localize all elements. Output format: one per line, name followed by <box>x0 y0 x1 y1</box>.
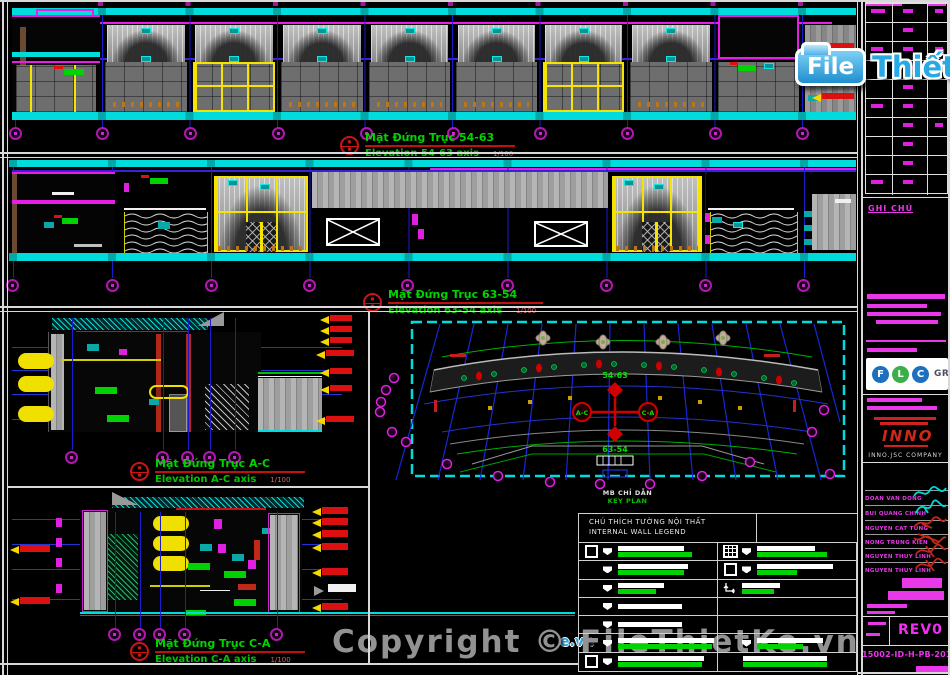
sign-box <box>317 28 327 34</box>
elevation-a-c-drawing: Mặt Đứng Trục A-C Elevation A-C axis 1/1… <box>0 311 368 486</box>
folder-icon: File <box>795 48 866 86</box>
internal-wall-legend: CHÚ THÍCH TƯỜNG NỘI THẤT INTERNAL WALL L… <box>578 513 858 672</box>
note-underline <box>866 340 946 342</box>
callout-stadium <box>18 353 54 369</box>
note-bar <box>867 294 945 299</box>
storefront-frame <box>193 62 275 112</box>
red-column <box>156 334 161 432</box>
section-line <box>862 394 949 395</box>
rev-entry <box>903 9 913 13</box>
note-bar <box>867 348 917 352</box>
sign-box <box>666 56 676 62</box>
annotation-green <box>224 571 246 578</box>
cyan-box <box>804 239 812 245</box>
roof-triangle <box>112 492 138 505</box>
red-column <box>254 540 260 560</box>
level-arrow-icon <box>312 508 321 516</box>
viewport-divider <box>0 306 858 308</box>
magenta-tag <box>56 558 62 567</box>
white-line <box>200 590 230 591</box>
title-vi: Mặt Đứng Trục C-A <box>155 638 305 650</box>
legend-row <box>579 598 857 616</box>
roof-triangle <box>198 312 224 326</box>
annotation-green <box>188 563 210 570</box>
curtain-bay <box>612 176 702 254</box>
level-flag <box>330 315 352 321</box>
title-vi: Mặt Đứng Trục A-C <box>155 458 305 470</box>
title-underline <box>388 302 543 304</box>
furniture-marks <box>377 102 442 107</box>
small-sign <box>52 192 74 195</box>
furniture-marks <box>464 102 529 107</box>
level-arrow-icon <box>312 519 321 527</box>
section-body <box>80 510 302 614</box>
wing-base <box>258 430 322 432</box>
rev-entry <box>903 142 913 146</box>
signature-red <box>912 556 948 574</box>
note-text-bar <box>876 320 938 324</box>
grid-bubble <box>96 127 109 140</box>
level-arrow-icon <box>812 94 821 102</box>
grid-caps <box>98 112 806 120</box>
magenta-box <box>214 519 222 529</box>
inno-logo: INNO <box>882 427 933 445</box>
title-vi: Mặt Đứng Trục 63-54 <box>388 289 543 301</box>
level-flag <box>822 93 854 99</box>
scale-bar <box>866 633 880 636</box>
title-en: Elevation A-C axis <box>155 474 256 485</box>
grid-bubble <box>709 127 722 140</box>
roof-hatch-band <box>112 497 304 508</box>
tag-icon <box>603 603 612 610</box>
legend-row <box>579 543 857 561</box>
sign-box <box>733 222 743 228</box>
tag-icon <box>742 566 751 573</box>
sign-box <box>228 180 238 186</box>
magenta-tag <box>124 183 129 192</box>
elevation-title-54-63: Mặt Đứng Trục 54-63 Elevation 54-63 axis… <box>340 132 515 159</box>
level-flag <box>330 385 352 391</box>
flc-letter-f: F <box>872 366 889 383</box>
grid-line <box>72 318 73 450</box>
small-sign <box>835 199 851 203</box>
grid-bubble <box>184 127 197 140</box>
grid-bubble <box>534 127 547 140</box>
grid-caps <box>9 253 809 261</box>
elevation-title-a-c: Mặt Đứng Trục A-C Elevation A-C axis 1/1… <box>130 458 305 485</box>
note-bar <box>867 398 922 402</box>
grid-bubble <box>9 127 22 140</box>
level-arrow-icon <box>10 546 19 554</box>
rev-box-line <box>889 616 890 645</box>
note-bar <box>867 304 927 308</box>
sign-box <box>229 56 239 62</box>
annotation-green <box>107 415 129 422</box>
sign-box <box>405 28 415 34</box>
grid-bubble <box>205 279 218 292</box>
level-flag <box>326 350 354 356</box>
cad-sheet: Mặt Đứng Trục 54-63 Elevation 54-63 axis… <box>0 0 950 675</box>
magenta-tag <box>56 518 62 527</box>
drawing-number: 15002-ID-H-PB-201.01 <box>862 650 949 659</box>
ground-line-green <box>80 615 575 616</box>
rev-col-line <box>892 3 893 195</box>
cladding-panels <box>312 172 608 208</box>
notes-label: GHI CHÚ <box>868 204 913 213</box>
facade-bay <box>369 15 450 120</box>
sign-box <box>764 63 774 69</box>
sign-box <box>260 184 270 190</box>
grid-line <box>115 512 116 628</box>
trim-line <box>12 61 100 63</box>
cyan-box <box>200 544 212 551</box>
callout-stadium <box>153 556 189 571</box>
sign-box <box>579 28 589 34</box>
wavy-wood-panel <box>124 212 208 253</box>
grid-line <box>188 318 189 450</box>
furniture-marks <box>616 246 698 251</box>
rev-entry <box>903 104 913 108</box>
inno-vn-name-bar <box>874 417 936 420</box>
striped-panel <box>84 512 106 610</box>
callout-stadium <box>153 516 189 531</box>
cyan-box <box>712 217 722 223</box>
level-flag <box>20 597 50 604</box>
level-arrow-icon <box>320 327 329 335</box>
cyan-box <box>158 222 170 229</box>
annotation-green <box>64 69 84 75</box>
legend-row <box>579 634 857 652</box>
level-arrow-icon <box>320 369 329 377</box>
legend-title-en: INTERNAL WALL LEGEND <box>589 527 756 537</box>
tag-icon <box>742 548 751 555</box>
level-arrow-icon <box>312 569 321 577</box>
sign-box <box>141 28 151 34</box>
section-line <box>862 197 949 198</box>
tag-icon <box>603 548 612 555</box>
grid-line <box>185 512 186 628</box>
level-flag <box>322 543 348 550</box>
annotation-red <box>54 215 62 218</box>
note-text-bar <box>867 312 941 316</box>
plan-grid-bubbles <box>376 374 835 489</box>
legend-row <box>579 561 857 579</box>
sign-box <box>317 56 327 62</box>
facade-bay <box>718 15 799 120</box>
scale-label: 1/100 <box>270 476 290 484</box>
ledge-line <box>708 208 794 210</box>
grid-bubble <box>108 628 121 641</box>
viewport-divider <box>0 157 858 158</box>
mirror-xbox <box>534 221 588 247</box>
grid-bubble <box>796 127 809 140</box>
grid-line <box>277 512 278 628</box>
legend-title-cell: CHÚ THÍCH TƯỜNG NỘI THẤT INTERNAL WALL L… <box>579 514 757 542</box>
elevation-63-54-drawing: Mặt Đứng Trục 63-54 Elevation 63-54 axis… <box>0 152 860 310</box>
field-bar <box>867 604 907 608</box>
sheet-border <box>2 0 4 675</box>
titleblock-border <box>857 0 858 675</box>
reception-desk <box>597 456 633 477</box>
yellow-line <box>150 585 210 587</box>
furniture-marks <box>638 102 704 107</box>
elevation-title-63-54: Mặt Đứng Trục 63-54 Elevation 63-54 axis… <box>363 289 543 316</box>
level-arrow-icon <box>320 338 329 346</box>
sign-box <box>492 28 502 34</box>
signer-row: NGUYEN THUY LINH <box>865 562 948 576</box>
key-plan-title-en: KEY PLAN <box>560 497 695 505</box>
wavy-wood-panel <box>710 212 798 253</box>
curtain-bay <box>214 176 308 254</box>
grid-line <box>160 512 161 628</box>
mirror-xbox <box>326 218 380 246</box>
callout-stadium <box>18 406 54 422</box>
rev-entry <box>871 180 883 184</box>
grid-line <box>235 318 236 450</box>
level-flag <box>326 416 354 422</box>
grid-caps <box>9 160 809 167</box>
note-bar <box>867 406 937 410</box>
key-plan-drawing: 54-63 63-54 A-C C-A <box>372 312 858 494</box>
tiny-text-marks <box>74 244 102 247</box>
annotation-green <box>62 218 78 224</box>
sign-box <box>229 28 239 34</box>
magenta-box <box>119 349 127 355</box>
grid-bubble <box>65 451 78 464</box>
grid-caps <box>98 8 806 15</box>
roof-hatch-band <box>52 318 208 330</box>
sign-box <box>624 180 634 186</box>
tag-icon <box>603 640 612 647</box>
cyan-box <box>149 399 159 405</box>
grid-bubble <box>621 127 634 140</box>
wall-square-icon <box>585 655 598 668</box>
flc-group-logo: F L C GROUP <box>866 358 948 390</box>
flc-letter-c: C <box>912 366 929 383</box>
x-lines <box>536 223 586 245</box>
grid-line <box>140 512 141 628</box>
legend-row <box>579 653 857 671</box>
key-plan-title-vi: MB CHỈ DẪN <box>560 489 695 497</box>
elevation-c-a-drawing: Mặt Đứng Trục C-A Elevation C-A axis 1/1… <box>0 487 368 663</box>
radial-grid-lines <box>396 324 840 480</box>
logo-text: Thiết Kế.vn <box>872 50 950 84</box>
wing-panel <box>258 378 322 430</box>
storefront-glass <box>16 65 96 112</box>
magenta-box <box>218 544 226 553</box>
sheet-border <box>7 0 8 675</box>
level-flag <box>330 337 352 343</box>
logo-thiet: Thiết <box>872 50 950 84</box>
section-mark-icon <box>363 293 382 312</box>
level-flag <box>322 603 348 610</box>
annotation-green <box>150 178 168 184</box>
inno-underline <box>884 445 928 447</box>
legend-header: CHÚ THÍCH TƯỜNG NỘI THẤT INTERNAL WALL L… <box>579 514 857 543</box>
furniture-marks <box>289 102 355 107</box>
level-flag <box>322 568 348 575</box>
level-flag <box>322 507 348 514</box>
cyan-box <box>804 225 812 231</box>
grid-bubble <box>106 279 119 292</box>
level-flag <box>20 545 50 552</box>
left-wall-block <box>12 15 100 112</box>
magenta-tag <box>56 538 62 547</box>
annotation-red <box>141 175 149 178</box>
titleblock-border <box>861 0 863 675</box>
feature-wall-b <box>706 174 798 254</box>
level-arrow-icon <box>320 386 329 394</box>
key-plan-label: MB CHỈ DẪN KEY PLAN <box>560 489 695 505</box>
grid-bubble <box>600 279 613 292</box>
yellow-line <box>61 359 161 361</box>
level-arrow-icon <box>320 316 329 324</box>
magenta-tag <box>705 235 710 244</box>
furniture-marks <box>113 102 179 107</box>
sign-box <box>654 184 664 190</box>
wall-square-icon <box>724 563 737 576</box>
viewport-divider <box>0 311 858 312</box>
canopy-band <box>12 52 100 57</box>
level-flag <box>322 518 348 525</box>
annotation-green <box>234 599 256 606</box>
tag-icon <box>603 621 612 628</box>
rev-entry <box>903 180 913 184</box>
annotation-green <box>95 387 117 394</box>
callout-stadium <box>149 385 189 399</box>
grid-bubble <box>797 279 810 292</box>
magenta-tag <box>418 229 424 239</box>
section-line <box>862 616 949 617</box>
title-underline <box>155 471 305 473</box>
facade-bay <box>105 15 187 120</box>
brick-hatch-icon <box>723 545 738 558</box>
level-flag <box>330 368 352 374</box>
magenta-tag <box>705 213 710 222</box>
facade-bay <box>281 15 363 120</box>
ground-line-cyan <box>80 612 575 614</box>
title-block: GHI CHÚ F L C GROUP INNO INNO.JSC COMPAN… <box>862 0 950 675</box>
rev-entry <box>903 123 913 127</box>
section-line <box>862 462 949 463</box>
door <box>169 394 187 432</box>
filethietke-logo: File Thiết Kế.vn <box>795 48 950 86</box>
rev-entry <box>871 104 883 108</box>
sign-box <box>141 56 151 62</box>
magenta-box <box>248 560 256 569</box>
level-arrow-icon <box>316 417 325 425</box>
legend-row <box>579 580 857 598</box>
marker-label-left: A-C <box>576 409 589 417</box>
grid-line <box>210 318 211 450</box>
sign-box <box>492 56 502 62</box>
glazing <box>718 62 799 112</box>
grid-bubble <box>303 279 316 292</box>
plan-boundary <box>412 322 844 476</box>
elevation-title-c-a: Mặt Đứng Trục C-A Elevation C-A axis 1/1… <box>130 638 305 665</box>
level-arrow-icon <box>312 531 321 539</box>
mullion <box>30 65 32 112</box>
level-flag <box>330 326 352 332</box>
furniture-marks <box>218 246 304 251</box>
inno-vn-name-bar <box>880 422 928 425</box>
sign-box <box>666 28 676 34</box>
rev-entry <box>935 123 943 127</box>
section-body <box>48 332 261 432</box>
sign-box <box>405 56 415 62</box>
facade-bay <box>193 15 275 120</box>
viewport-divider <box>368 311 370 663</box>
red-box <box>238 584 256 590</box>
facade-bay <box>543 15 624 120</box>
title-vi: Mặt Đứng Trục 54-63 <box>365 132 515 144</box>
tag-icon <box>603 658 612 665</box>
sign-box <box>579 56 589 62</box>
flc-letter-l: L <box>892 366 909 383</box>
facade-bay <box>630 15 712 120</box>
elevation-54-63-drawing: Mặt Đứng Trục 54-63 Elevation 54-63 axis… <box>0 0 860 152</box>
feature-wall-a <box>122 174 208 254</box>
callout-stadium <box>18 376 54 392</box>
section-line <box>862 645 949 646</box>
cyan-box <box>804 211 812 217</box>
left-wall-block <box>12 172 115 255</box>
hatched-panel <box>205 384 249 430</box>
legend-title-vi: CHÚ THÍCH TƯỜNG NỘI THẤT <box>589 517 756 527</box>
level-arrow-icon <box>10 598 19 606</box>
tag-icon <box>603 585 612 592</box>
level-arrow-icon <box>312 544 321 552</box>
wall-square-icon <box>585 545 598 558</box>
ledge-line <box>124 208 206 210</box>
section-mark-icon <box>130 642 149 661</box>
rev-entry <box>871 9 885 13</box>
facade-bay <box>456 15 537 120</box>
sheet-border <box>857 672 950 674</box>
viewport-divider <box>0 152 858 154</box>
level-arrow-icon <box>312 604 321 612</box>
revision-table <box>865 2 948 194</box>
entrance-door-frame <box>543 62 624 112</box>
grid-line <box>163 318 164 450</box>
grid-bubble <box>272 127 285 140</box>
cyan-box <box>87 344 99 351</box>
title-underline <box>155 651 305 653</box>
annotation-red <box>54 66 63 69</box>
rev-entry <box>903 161 913 165</box>
dark-upper-block <box>718 15 799 59</box>
callout-stadium <box>153 536 189 551</box>
field-bar <box>867 611 895 614</box>
title-underline <box>365 145 515 147</box>
planter-flowers <box>536 331 730 349</box>
rev-entry <box>903 28 913 32</box>
annotation-green <box>738 65 756 71</box>
viewport-divider <box>0 663 578 665</box>
rev-entry <box>935 9 943 13</box>
revision-code: REV0 <box>898 622 943 638</box>
grid-bubble <box>699 279 712 292</box>
magenta-strip <box>12 200 115 204</box>
marker-label-top: 54-63 <box>602 371 628 380</box>
wood-strip <box>12 174 17 257</box>
corner-arrow-icon <box>723 582 737 595</box>
marker-label-right: C-A <box>642 409 655 417</box>
axis-tick-strip <box>98 1 806 6</box>
gray-arrow-icon <box>314 586 324 596</box>
level-arrow-icon <box>316 351 325 359</box>
green-hatch-panel <box>108 534 138 600</box>
